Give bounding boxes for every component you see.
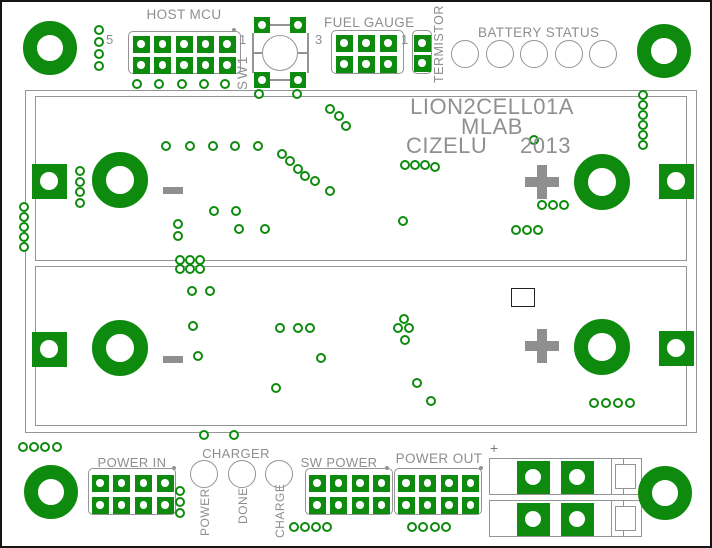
via — [325, 104, 335, 114]
via — [195, 264, 205, 274]
via — [18, 442, 28, 452]
via — [220, 79, 230, 89]
header-pad-host-mcu-hole — [202, 61, 210, 69]
header-pad-power-in — [157, 475, 174, 492]
via — [589, 398, 599, 408]
sw1-label: SW1 — [235, 35, 251, 90]
connector-pad — [561, 503, 594, 536]
via — [75, 198, 85, 208]
header-pad-sw-power-hole — [356, 501, 364, 509]
charger-led-done-label: DONE — [235, 488, 251, 524]
fuel-gauge-label: FUEL GAUGE — [324, 15, 408, 30]
via — [638, 110, 648, 120]
header-pad-sw-power — [309, 497, 326, 514]
board-year: 2013 — [520, 133, 571, 159]
via — [175, 264, 185, 274]
header-pad-fuel-gauge-hole — [340, 39, 348, 47]
header-pad-fuel-gauge-hole — [362, 39, 370, 47]
via — [638, 90, 648, 100]
connector-pad — [517, 503, 550, 536]
header-pad-sw-power — [352, 497, 369, 514]
header-pad-sw-power — [373, 475, 390, 492]
via — [132, 79, 142, 89]
header-pad-power-out-hole — [445, 479, 453, 487]
via — [175, 508, 185, 518]
via — [208, 141, 218, 151]
via — [209, 206, 219, 216]
header-pad-fuel-gauge-hole — [340, 60, 348, 68]
fuel-gauge-pin1-label: 1 — [401, 32, 409, 47]
battery-status-led — [451, 40, 479, 68]
cell1-minus-mark — [163, 187, 183, 194]
via — [322, 522, 332, 532]
connector-plus-label: + — [490, 440, 499, 456]
via — [75, 187, 85, 197]
header-pad-sw-power-hole — [313, 501, 321, 509]
connector-pad-hole — [569, 469, 585, 485]
via — [420, 160, 430, 170]
via — [19, 222, 29, 232]
via — [19, 242, 29, 252]
header-pad-fuel-gauge — [358, 56, 375, 73]
sw-power-label: SW POWER — [300, 455, 378, 470]
via — [75, 177, 85, 187]
header-pad-sw-power — [352, 475, 369, 492]
battery-terminal-pad-hole — [667, 339, 685, 357]
via — [412, 378, 422, 388]
via — [175, 486, 185, 496]
header-pad-fuel-gauge-hole — [384, 60, 392, 68]
header-pad-host-mcu-hole — [137, 40, 145, 48]
battery-terminal-pad — [659, 164, 694, 199]
battery-terminal-pad-hole — [40, 340, 58, 358]
header-pad-fuel-gauge — [380, 56, 397, 73]
via — [293, 323, 303, 333]
header-pad-sw-power-hole — [378, 479, 386, 487]
power-out-label: POWER OUT — [394, 451, 484, 466]
via — [548, 200, 558, 210]
header-pad-host-mcu — [176, 36, 193, 53]
sw1-pad-hole — [294, 21, 302, 29]
header-pad-termistor — [414, 55, 431, 72]
sw1-pad-hole — [258, 76, 266, 84]
header-pad-power-in-hole — [118, 501, 126, 509]
header-pad-power-out — [462, 497, 479, 514]
via — [522, 225, 532, 235]
header-pad-power-in — [157, 497, 174, 514]
battery-status-led — [520, 40, 548, 68]
via — [511, 225, 521, 235]
via — [94, 37, 104, 47]
mounting-hole — [23, 21, 77, 75]
via — [398, 216, 408, 226]
via — [185, 264, 195, 274]
battery-status-led — [486, 40, 514, 68]
header-pad-power-out-hole — [402, 479, 410, 487]
cell1-plus-mark — [525, 165, 559, 199]
via — [177, 79, 187, 89]
header-pad-power-in — [113, 475, 130, 492]
header-pad-power-out — [441, 475, 458, 492]
pin1-marker-dot — [232, 28, 236, 32]
header-pad-host-mcu-hole — [137, 61, 145, 69]
via — [154, 79, 164, 89]
via — [19, 202, 29, 212]
battery-terminal-pad — [32, 164, 67, 199]
via — [275, 323, 285, 333]
via — [341, 121, 351, 131]
header-pad-host-mcu-hole — [223, 40, 231, 48]
via — [199, 79, 209, 89]
via — [75, 166, 85, 176]
header-pad-host-mcu-hole — [159, 40, 167, 48]
sw1-pad-hole — [258, 21, 266, 29]
header-pad-termistor — [414, 35, 431, 52]
header-pad-power-in-hole — [96, 501, 104, 509]
via — [199, 430, 209, 440]
sw1-pad — [254, 17, 270, 33]
header-pad-fuel-gauge-hole — [384, 39, 392, 47]
via — [407, 522, 417, 532]
via — [52, 442, 62, 452]
battery-terminal-ring — [92, 320, 148, 376]
connector-pad-hole — [525, 469, 541, 485]
via — [325, 186, 335, 196]
connector-pad-hole — [525, 511, 541, 527]
via — [305, 323, 315, 333]
header-pad-power-in — [92, 497, 109, 514]
via — [316, 353, 326, 363]
mounting-hole — [24, 465, 78, 519]
header-pad-host-mcu-hole — [223, 61, 231, 69]
via — [231, 206, 241, 216]
via — [19, 232, 29, 242]
pin1-marker-dot — [172, 466, 176, 470]
via — [229, 430, 239, 440]
header-pad-power-in-hole — [140, 479, 148, 487]
via — [188, 321, 198, 331]
charger-led-charge-label: CHARGE — [272, 488, 288, 538]
via — [559, 200, 569, 210]
fuel-gauge-pin3-label: 3 — [315, 32, 323, 47]
header-pad-fuel-gauge — [380, 35, 397, 52]
header-pad-power-out — [419, 497, 436, 514]
via — [260, 224, 270, 234]
header-pad-host-mcu — [154, 36, 171, 53]
via — [533, 225, 543, 235]
via — [613, 398, 623, 408]
header-pad-host-mcu — [197, 36, 214, 53]
battery-terminal-pad-hole — [40, 172, 58, 190]
via — [625, 398, 635, 408]
header-pad-host-mcu-hole — [180, 61, 188, 69]
via — [418, 522, 428, 532]
header-pad-power-in — [113, 497, 130, 514]
header-pad-host-mcu — [176, 57, 193, 74]
host-mcu-label: HOST MCU — [128, 7, 240, 22]
header-pad-power-in-hole — [161, 501, 169, 509]
header-pad-termistor-hole — [418, 59, 426, 67]
via — [234, 224, 244, 234]
header-pad-power-out — [462, 475, 479, 492]
header-pad-power-out-hole — [424, 479, 432, 487]
header-pad-termistor-hole — [418, 39, 426, 47]
header-pad-host-mcu — [154, 57, 171, 74]
via — [253, 141, 263, 151]
via — [271, 383, 281, 393]
header-pad-power-out — [398, 475, 415, 492]
host-mcu-pin5-label: 5 — [106, 32, 114, 47]
header-pad-fuel-gauge — [336, 56, 353, 73]
header-pad-power-out — [398, 497, 415, 514]
via — [187, 286, 197, 296]
battery-terminal-pad — [659, 331, 694, 366]
header-pad-fuel-gauge-hole — [362, 60, 370, 68]
via — [441, 522, 451, 532]
via — [19, 212, 29, 222]
via — [311, 522, 321, 532]
sw1-pad — [254, 72, 270, 88]
connector-pad — [561, 461, 594, 494]
sw1-pad-hole — [294, 76, 302, 84]
header-pad-sw-power-hole — [378, 501, 386, 509]
header-pad-sw-power — [330, 475, 347, 492]
via — [29, 442, 39, 452]
header-pad-fuel-gauge — [336, 35, 353, 52]
header-pad-power-out-hole — [424, 501, 432, 509]
mounting-hole — [637, 24, 691, 78]
via — [638, 140, 648, 150]
header-pad-sw-power-hole — [313, 479, 321, 487]
via — [173, 231, 183, 241]
header-pad-power-in-hole — [161, 479, 169, 487]
via — [430, 162, 440, 172]
header-pad-power-out-hole — [445, 501, 453, 509]
battery-status-led — [555, 40, 583, 68]
header-pad-sw-power — [373, 497, 390, 514]
via — [193, 351, 203, 361]
termistor-label: TERMISTOR — [431, 6, 447, 83]
pin1-marker-dot — [479, 466, 483, 470]
via — [300, 522, 310, 532]
charger-led — [228, 460, 256, 488]
via — [400, 335, 410, 345]
header-pad-sw-power — [330, 497, 347, 514]
header-pad-sw-power-hole — [335, 479, 343, 487]
battery-terminal-ring — [92, 152, 148, 208]
via — [638, 100, 648, 110]
via — [400, 160, 410, 170]
connector-pad-hole — [569, 511, 585, 527]
header-pad-host-mcu — [133, 36, 150, 53]
via — [430, 522, 440, 532]
header-pad-power-in — [92, 475, 109, 492]
header-pad-power-out-hole — [467, 501, 475, 509]
battery-status-led — [589, 40, 617, 68]
header-pad-power-in — [135, 475, 152, 492]
header-pad-host-mcu-hole — [159, 61, 167, 69]
board-author: CIZELU — [406, 133, 487, 159]
via — [230, 141, 240, 151]
via — [94, 49, 104, 59]
charger-led — [190, 460, 218, 488]
via — [300, 171, 310, 181]
via — [638, 130, 648, 140]
charger-label: CHARGER — [200, 446, 272, 461]
via — [185, 141, 195, 151]
header-pad-power-out-hole — [467, 479, 475, 487]
via — [334, 111, 344, 121]
header-pad-power-out-hole — [402, 501, 410, 509]
header-pad-sw-power-hole — [335, 501, 343, 509]
charger-led-power-label: POWER — [197, 488, 213, 536]
sw1-pad — [290, 72, 306, 88]
header-pad-power-out — [419, 475, 436, 492]
header-pad-power-in — [135, 497, 152, 514]
via — [175, 497, 185, 507]
battery-terminal-pad-hole — [667, 172, 685, 190]
via — [254, 89, 264, 99]
header-pad-host-mcu-hole — [180, 40, 188, 48]
header-pad-power-in-hole — [118, 479, 126, 487]
battery-terminal-pad — [32, 332, 67, 367]
battery-status-label: BATTERY STATUS — [478, 25, 590, 40]
via — [404, 323, 414, 333]
header-pad-sw-power — [309, 475, 326, 492]
pin1-marker-dot — [385, 466, 389, 470]
via — [161, 141, 171, 151]
header-pad-host-mcu — [197, 57, 214, 74]
header-pad-host-mcu — [133, 57, 150, 74]
via — [40, 442, 50, 452]
mounting-hole — [638, 466, 692, 520]
cell2-minus-mark — [163, 356, 183, 363]
header-pad-host-mcu-hole — [202, 40, 210, 48]
via — [601, 398, 611, 408]
header-pad-power-in-hole — [140, 501, 148, 509]
header-pad-sw-power-hole — [356, 479, 364, 487]
via — [393, 323, 403, 333]
via — [173, 219, 183, 229]
header-pad-fuel-gauge — [358, 35, 375, 52]
header-pad-power-in-hole — [96, 479, 104, 487]
via — [638, 120, 648, 130]
via — [310, 176, 320, 186]
via — [205, 286, 215, 296]
battery-terminal-ring — [574, 154, 630, 210]
cell2-plus-mark — [525, 329, 559, 363]
header-pad-host-mcu — [219, 57, 236, 74]
via — [94, 25, 104, 35]
power-in-label: POWER IN — [96, 455, 168, 470]
pcb-board: HOST MCU 5 1 SW1 FUEL GAUGE 3 1 TERMISTO… — [0, 0, 712, 548]
via — [94, 61, 104, 71]
via — [410, 160, 420, 170]
via — [289, 522, 299, 532]
via — [537, 200, 547, 210]
header-pad-power-out — [441, 497, 458, 514]
connector-pad — [517, 461, 550, 494]
header-pad-host-mcu — [219, 36, 236, 53]
battery-terminal-ring — [574, 319, 630, 375]
via — [426, 396, 436, 406]
via — [292, 89, 302, 99]
sw1-pad — [290, 17, 306, 33]
